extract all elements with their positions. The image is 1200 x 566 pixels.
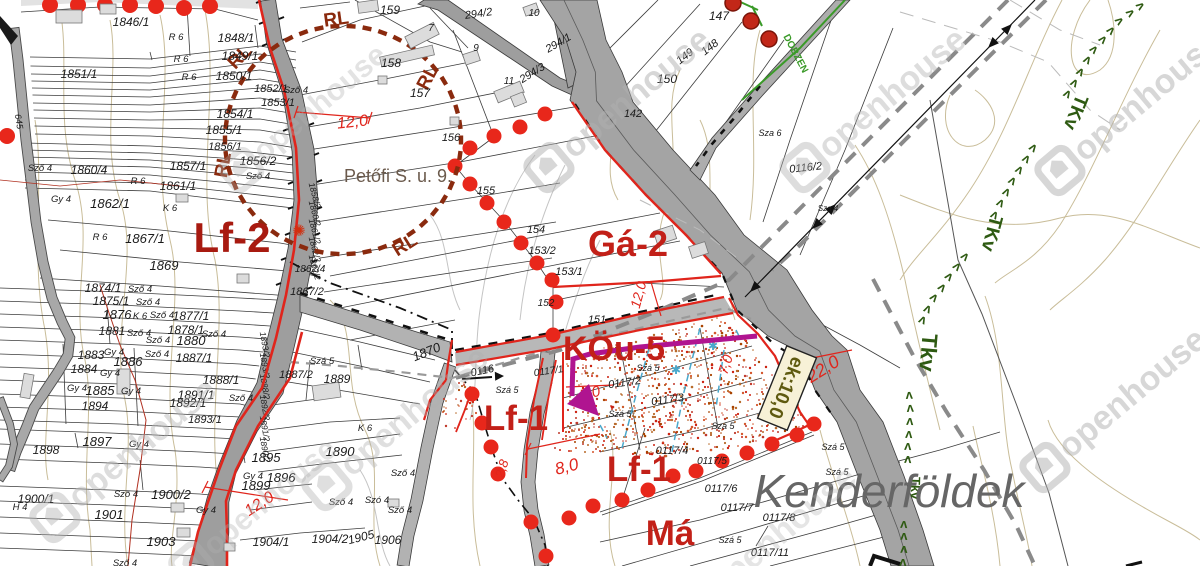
svg-text:1862/1: 1862/1 xyxy=(90,196,130,211)
svg-text:Gá-2: Gá-2 xyxy=(588,223,668,264)
svg-text:v: v xyxy=(899,530,908,545)
svg-text:155: 155 xyxy=(477,185,496,197)
svg-text:RL: RL xyxy=(322,7,350,31)
svg-text:R 6: R 6 xyxy=(169,32,185,43)
svg-text:Sző 4: Sző 4 xyxy=(113,558,137,566)
svg-text:1867/1: 1867/1 xyxy=(125,231,165,246)
svg-text:Gy 4: Gy 4 xyxy=(67,383,87,394)
svg-text:1906: 1906 xyxy=(375,533,402,547)
svg-text:1887/1: 1887/1 xyxy=(176,351,213,365)
svg-text:Sző 4: Sző 4 xyxy=(146,335,170,346)
svg-text:Petőfi S. u. 9.: Petőfi S. u. 9. xyxy=(344,166,452,186)
svg-text:Sző 4: Sző 4 xyxy=(114,489,138,500)
svg-text:Szá 5: Szá 5 xyxy=(608,409,632,419)
svg-text:156: 156 xyxy=(442,132,461,144)
svg-text:Lf-1: Lf-1 xyxy=(607,450,671,489)
svg-text:1857/1: 1857/1 xyxy=(170,159,207,173)
svg-text:1883: 1883 xyxy=(78,348,105,362)
svg-text:Sza 6: Sza 6 xyxy=(758,128,781,138)
svg-text:✱: ✱ xyxy=(671,363,681,377)
svg-text:Szá 5: Szá 5 xyxy=(495,385,519,395)
svg-text:1900/2: 1900/2 xyxy=(151,487,192,502)
svg-text:1851/1: 1851/1 xyxy=(61,67,98,81)
svg-text:R 6: R 6 xyxy=(131,176,147,187)
svg-text:153/2: 153/2 xyxy=(528,245,556,257)
svg-text:Szá 5: Szá 5 xyxy=(711,421,735,431)
svg-text:✺: ✺ xyxy=(292,223,305,240)
svg-text:1862/4: 1862/4 xyxy=(295,264,326,275)
svg-text:Sző 4: Sző 4 xyxy=(28,163,52,174)
svg-text:159: 159 xyxy=(380,3,400,17)
svg-text:0117/5: 0117/5 xyxy=(697,456,727,467)
svg-text:K 6: K 6 xyxy=(133,311,148,322)
svg-text:H 4: H 4 xyxy=(13,502,28,513)
svg-text:151: 151 xyxy=(588,314,606,326)
svg-text:R 6: R 6 xyxy=(93,232,109,243)
svg-text:1903: 1903 xyxy=(147,534,177,549)
svg-text:Gy 4: Gy 4 xyxy=(104,347,124,358)
svg-text:Sző 4: Sző 4 xyxy=(136,297,160,308)
svg-text:9: 9 xyxy=(473,43,479,54)
svg-text:Gy 4: Gy 4 xyxy=(121,386,141,397)
svg-text:R 6: R 6 xyxy=(182,72,198,83)
svg-text:Sza 4: Sza 4 xyxy=(818,204,839,213)
svg-text:Sző 4: Sző 4 xyxy=(388,505,412,516)
svg-text:1867/2: 1867/2 xyxy=(290,286,324,298)
svg-text:1860/4: 1860/4 xyxy=(71,163,108,177)
svg-text:157: 157 xyxy=(410,86,431,100)
svg-text:Má: Má xyxy=(646,514,695,553)
svg-text:Gy 4: Gy 4 xyxy=(243,471,263,482)
svg-text:Szó 4: Szó 4 xyxy=(365,495,389,506)
svg-text:Sző 4: Sző 4 xyxy=(391,468,415,479)
svg-text:11: 11 xyxy=(504,76,514,87)
svg-text:Gy 4: Gy 4 xyxy=(51,194,71,205)
svg-text:Sző 4: Sző 4 xyxy=(229,393,253,404)
svg-text:1876: 1876 xyxy=(103,307,133,322)
svg-text:1881: 1881 xyxy=(99,324,126,338)
svg-text:1869: 1869 xyxy=(150,258,179,273)
svg-text:1901: 1901 xyxy=(95,507,124,522)
svg-text:153/1: 153/1 xyxy=(555,266,583,278)
svg-text:Lf-2: Lf-2 xyxy=(194,214,271,261)
svg-text:147: 147 xyxy=(709,9,730,23)
svg-text:1849/1: 1849/1 xyxy=(222,49,259,63)
svg-text:1894: 1894 xyxy=(82,399,109,413)
svg-text:1898: 1898 xyxy=(33,443,60,457)
svg-text:1861/1: 1861/1 xyxy=(160,179,197,193)
svg-text:1854/1: 1854/1 xyxy=(217,107,254,121)
svg-text:Gy 4: Gy 4 xyxy=(196,505,216,516)
svg-text:Sző 4: Sző 4 xyxy=(145,349,169,360)
svg-text:7: 7 xyxy=(428,23,434,34)
svg-text:1846/1: 1846/1 xyxy=(113,15,150,29)
svg-text:Sző 4: Sző 4 xyxy=(128,284,152,295)
svg-text:v: v xyxy=(899,543,908,558)
svg-text:1885: 1885 xyxy=(86,383,116,398)
svg-text:Szá 5: Szá 5 xyxy=(310,356,335,367)
svg-text:1850/1: 1850/1 xyxy=(216,69,253,83)
svg-text:1887/2: 1887/2 xyxy=(279,369,313,381)
svg-text:1848/1: 1848/1 xyxy=(218,31,255,45)
svg-text:0117/6: 0117/6 xyxy=(705,483,739,495)
svg-text:1875/1: 1875/1 xyxy=(93,294,130,308)
svg-text:152: 152 xyxy=(538,298,555,309)
svg-text:R 6: R 6 xyxy=(174,54,190,65)
svg-text:KÖu-5: KÖu-5 xyxy=(563,330,665,368)
svg-text:Lf-1: Lf-1 xyxy=(484,399,548,438)
svg-text:v: v xyxy=(898,556,907,566)
svg-text:1895: 1895 xyxy=(252,450,282,465)
svg-text:1904/1: 1904/1 xyxy=(253,535,290,549)
svg-text:Sző 4: Sző 4 xyxy=(202,329,226,340)
svg-text:Gy 4: Gy 4 xyxy=(100,368,120,379)
svg-text:1889: 1889 xyxy=(324,372,351,386)
svg-text:154: 154 xyxy=(527,224,545,236)
svg-text:Tkv: Tkv xyxy=(914,333,942,374)
svg-text:Szá 5: Szá 5 xyxy=(821,442,845,452)
svg-text:1852/1: 1852/1 xyxy=(254,83,288,95)
svg-text:1874/1: 1874/1 xyxy=(85,281,122,295)
svg-text:0117/7: 0117/7 xyxy=(721,502,755,514)
svg-text:1904/2: 1904/2 xyxy=(312,532,349,546)
svg-text:1855/1: 1855/1 xyxy=(206,123,243,137)
svg-text:1884: 1884 xyxy=(71,362,98,376)
svg-text:Sző 4: Sző 4 xyxy=(150,310,174,321)
svg-text:12,0: 12,0 xyxy=(336,112,369,132)
svg-text:1877/1: 1877/1 xyxy=(173,309,210,323)
svg-text:K 6: K 6 xyxy=(163,203,178,214)
svg-text:10: 10 xyxy=(528,8,540,19)
